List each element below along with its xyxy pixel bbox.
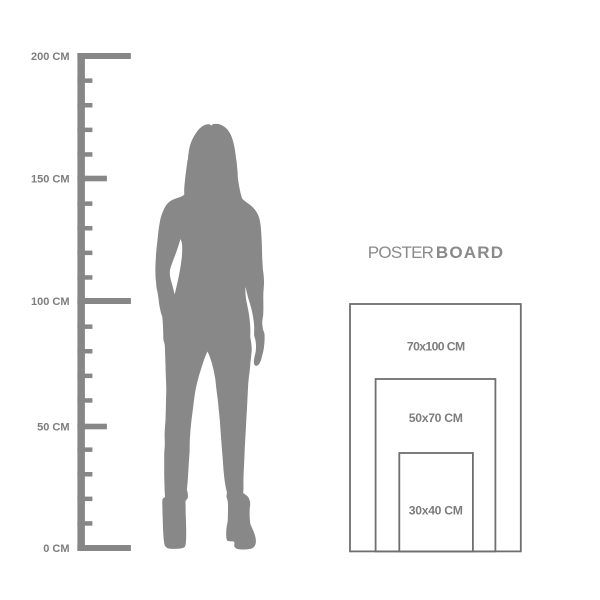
svg-text:70x100 CM: 70x100 CM (407, 339, 465, 353)
svg-text:50 CM: 50 CM (37, 421, 69, 433)
svg-text:150 CM: 150 CM (31, 173, 70, 185)
svg-text:50x70 CM: 50x70 CM (409, 411, 463, 425)
svg-text:BOARD: BOARD (436, 243, 504, 262)
svg-text:POSTER: POSTER (368, 243, 434, 262)
svg-text:30x40 CM: 30x40 CM (409, 504, 463, 518)
svg-text:100 CM: 100 CM (31, 296, 70, 308)
svg-text:0 CM: 0 CM (43, 543, 69, 555)
svg-text:200 CM: 200 CM (31, 51, 70, 63)
